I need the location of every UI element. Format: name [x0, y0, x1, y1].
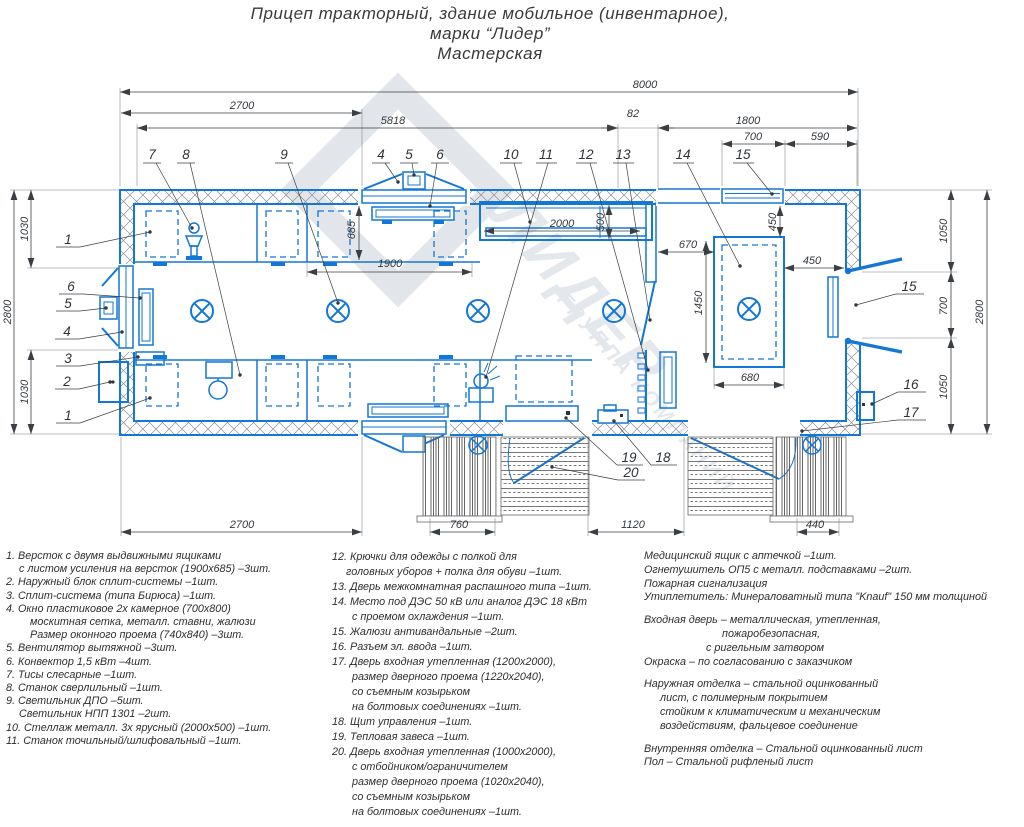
- dim-right-top: 1050: [938, 218, 950, 243]
- dim-right-bottom: 1050: [938, 374, 950, 399]
- dim-bottom-left: 2700: [229, 519, 255, 531]
- dim-total-length: 8000: [633, 79, 658, 91]
- legend-line: Размер оконного проема (740х840) –3шт.: [6, 629, 271, 642]
- legend-line: 3. Сплит-система (типа Бирюса) –1шт.: [6, 590, 271, 603]
- callout-11: 11: [539, 147, 553, 162]
- dim-bench-depth: 685: [346, 220, 358, 239]
- legend-line: Окраска – по согласованию с заказчиком: [644, 656, 987, 670]
- dim-bench-gap: 1900: [378, 258, 403, 270]
- dim-top-mid: 5818: [381, 115, 406, 127]
- legend-line: 18. Щит управления –1шт.: [332, 715, 592, 730]
- dim-stair-left: 760: [450, 519, 469, 531]
- stair-block-left: [423, 437, 496, 516]
- legend-line: головных уборов + полка для обуви –1шт.: [332, 565, 592, 580]
- legend-line: Медицинский ящик с аптечкой –1шт.: [644, 550, 987, 564]
- callout-7: 7: [148, 147, 156, 162]
- legend-line: Пожарная сигнализация: [644, 578, 987, 592]
- louvre-window-top: [722, 189, 783, 203]
- callout-20: 20: [622, 465, 639, 480]
- legend-line: 4. Окно пластиковое 2х камерное (700х800…: [6, 603, 271, 616]
- legend-line: с ригельным затвором: [644, 642, 987, 656]
- callout-3: 3: [64, 351, 72, 366]
- legend-line: размер дверного проема (1220х2040),: [332, 670, 592, 685]
- convector-left: [139, 289, 153, 345]
- dim-stair-right: 440: [806, 519, 825, 531]
- callout-5: 5: [405, 147, 413, 162]
- dim-genset-top: 450: [767, 212, 779, 231]
- legend-line: 14. Место под ДЭС 50 кВ или аналог ДЭС 1…: [332, 595, 592, 610]
- legend-line: на болтовых соединениях –1шт.: [332, 700, 592, 715]
- exhaust-fan-left: [100, 297, 117, 319]
- dim-height-left: 2800: [2, 299, 14, 325]
- legend-line: 20. Дверь входная утепленная (1000х2000)…: [332, 745, 592, 760]
- lamp-icon: [467, 300, 489, 322]
- legend-line: 2. Наружный блок сплит-системы –1шт.: [6, 576, 271, 589]
- legend-line: Пол – Стальной рифленый лист: [644, 756, 987, 770]
- control-panel: [598, 405, 628, 423]
- callout-19: 19: [621, 450, 637, 465]
- legend-line: с листом усиления на версток (1900х685) …: [6, 563, 271, 576]
- callout-2: 2: [62, 374, 71, 389]
- legend-line: Внутренняя отделка – Стальной оцинкованн…: [644, 743, 987, 757]
- legend-line: Входная дверь – металлическая, утепленна…: [644, 614, 987, 628]
- legend-line: со съемным козырьком: [332, 685, 592, 700]
- legend-line: 15. Жалюзи антивандальные –2шт.: [332, 625, 592, 640]
- callout-13: 13: [615, 147, 631, 162]
- dim-genset-right: 450: [803, 255, 822, 267]
- legend-line: 9. Светильник ДПО –5шт.: [6, 695, 271, 708]
- dim-genset-width: 680: [741, 372, 760, 384]
- bench-vise: [186, 223, 202, 260]
- legend-line: лист, с полимерным покрытием: [644, 692, 987, 706]
- stair-block-right: [776, 437, 846, 516]
- callout-4-left: 4: [63, 324, 71, 339]
- ramp-left: [501, 437, 589, 515]
- drill-press: [206, 362, 232, 399]
- legend-column-2: 12. Крючки для одежды с полкой дляголовн…: [332, 550, 592, 820]
- blueprint-page: Прицеп тракторный, здание мобильное (инв…: [0, 0, 1024, 827]
- dim-top-right: 1800: [736, 115, 761, 127]
- legend-line: 6. Конвектор 1,5 кВт –4шт.: [6, 656, 271, 669]
- callout-6: 6: [436, 147, 444, 162]
- callout-18: 18: [655, 450, 671, 465]
- dim-left-bottom: 1030: [19, 379, 31, 404]
- callout-15-top: 15: [735, 147, 751, 162]
- legend-line: на болтовых соединениях –1шт.: [332, 805, 592, 820]
- dim-genset-offset: 670: [679, 239, 698, 251]
- legend-line: Утиплетитель: Минераловатный типа "Knauf…: [644, 591, 987, 605]
- legend-line: [644, 669, 987, 678]
- legend-line: 7. Тисы слесарные –1шт.: [6, 669, 271, 682]
- dim-corner: 590: [811, 131, 830, 143]
- legend-line: с отбойником/ограничителем: [332, 760, 592, 775]
- legend-line: [644, 734, 987, 743]
- lamp-icon: [327, 300, 349, 322]
- ramp-right: [688, 437, 773, 515]
- legend-line: с проемом охлаждения –1шт.: [332, 610, 592, 625]
- exhaust-fan-bottom: [403, 436, 425, 452]
- dim-left-top: 1030: [19, 216, 31, 241]
- genset-place: [714, 237, 784, 367]
- legend-line: Светильник НПП 1301 –2шт.: [6, 708, 271, 721]
- legend-line: 5. Вентилятор вытяжной –3шт.: [6, 642, 271, 655]
- callout-10: 10: [503, 147, 519, 162]
- dim-vent-window: 700: [744, 131, 763, 143]
- legend-line: Наружная отделка – стальной оцинкованный: [644, 678, 987, 692]
- dim-partition-gap: 82: [627, 108, 639, 120]
- legend-line: Огнетушитель ОП5 с металл. подставками –…: [644, 564, 987, 578]
- grinder-machine: [469, 363, 500, 402]
- top-window: [362, 172, 466, 224]
- callout-6-left: 6: [67, 279, 75, 294]
- legend-line: стойким к климатическим и механическим: [644, 706, 987, 720]
- legend-line: 17. Дверь входная утепленная (1200х2000)…: [332, 655, 592, 670]
- callout-15-right: 15: [901, 279, 917, 294]
- legend-line: размер дверного проема (1020х2040),: [332, 775, 592, 790]
- legend-line: [644, 605, 987, 614]
- callout-1-top: 1: [64, 232, 72, 247]
- callout-4: 4: [377, 147, 385, 162]
- legend-line: 1. Версток с двумя выдвижными ящиками: [6, 550, 271, 563]
- dim-height-right: 2800: [974, 299, 986, 325]
- legend-column-1: 1. Версток с двумя выдвижными ящикамис л…: [6, 550, 271, 748]
- legend-line: 12. Крючки для одежды с полкой для: [332, 550, 592, 565]
- legend-line: воздействиям, фальцевое соединение: [644, 720, 987, 734]
- callout-12: 12: [578, 147, 594, 162]
- convector-top: [372, 207, 454, 220]
- legend-line: москитная сетка, металл. ставни, жалюзи: [6, 616, 271, 629]
- lamp-icon: [738, 298, 760, 320]
- callout-16: 16: [903, 377, 919, 392]
- legend-line: 11. Станок точильный/шлифовальный –1шт.: [6, 735, 271, 748]
- legend-line: 8. Станок сверлильный –1шт.: [6, 682, 271, 695]
- callout-5-left: 5: [64, 296, 72, 311]
- callout-9: 9: [280, 147, 288, 162]
- lamp-icon: [191, 300, 213, 322]
- dim-top-left: 2700: [229, 100, 255, 112]
- legend-line: со съемным козырьком: [332, 790, 592, 805]
- legend-line: пожаробезопасная,: [644, 628, 987, 642]
- dim-rack-length: 2000: [549, 218, 575, 230]
- legend-column-3: Медицинский ящик с аптечкой –1шт.Огнетуш…: [644, 550, 987, 770]
- callout-17: 17: [903, 405, 919, 420]
- legend-line: 13. Дверь межкомнатная распашного типа –…: [332, 580, 592, 595]
- dim-door-right: 700: [938, 296, 950, 315]
- dim-rack-depth: 500: [595, 212, 607, 231]
- callout-8: 8: [182, 147, 190, 162]
- dim-bottom-mid: 1120: [621, 519, 646, 531]
- legend-line: 19. Тепловая завеса –1шт.: [332, 730, 592, 745]
- callout-14: 14: [675, 147, 690, 162]
- legend-line: 16. Разъем эл. ввода –1шт.: [332, 640, 592, 655]
- callout-1-bottom: 1: [64, 408, 72, 423]
- legend-line: 10. Стеллаж металл. 3х ярусный (2000х500…: [6, 722, 271, 735]
- dim-genset-length: 1450: [693, 290, 705, 315]
